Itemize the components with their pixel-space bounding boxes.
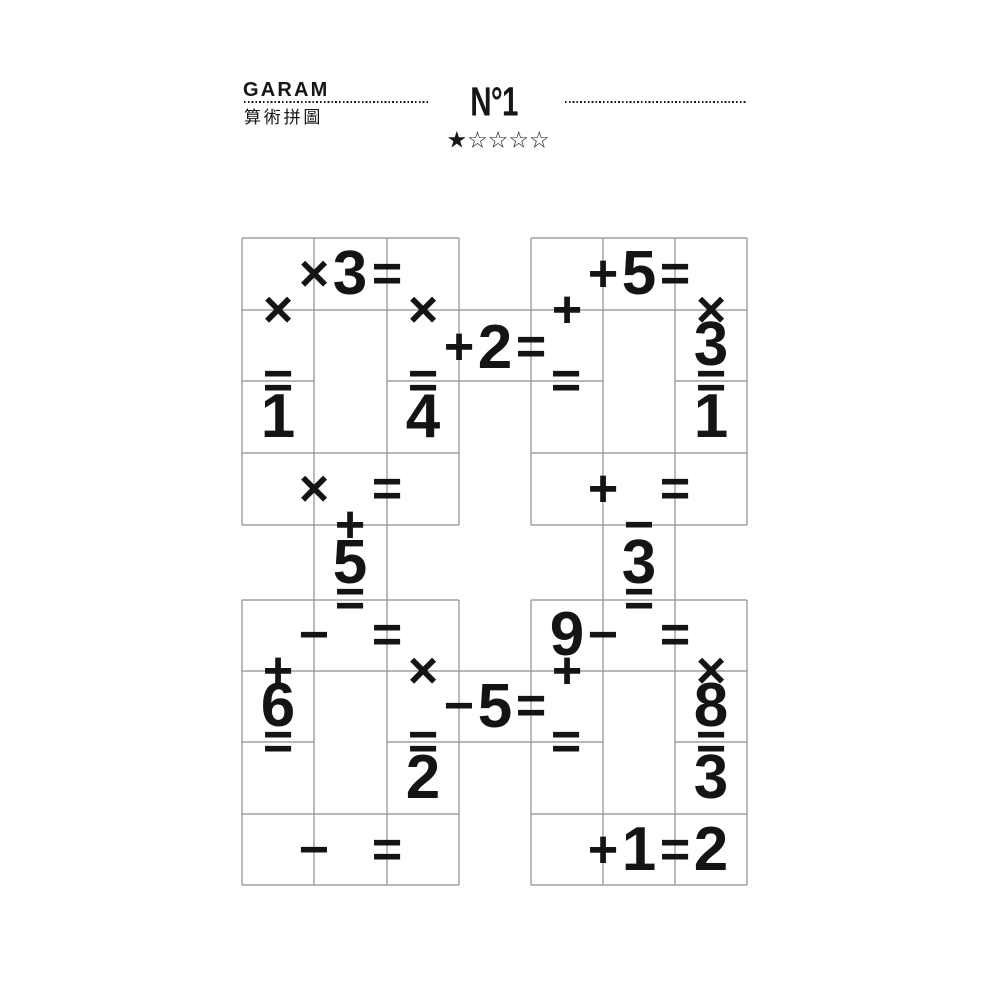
bottom-left-col3-result: 2	[406, 747, 440, 809]
top-right-row1-equals: =	[660, 248, 690, 300]
top-left-col1-result: 1	[261, 386, 295, 448]
top-right-col3-result: 1	[694, 386, 728, 448]
connector-top-value: 2	[478, 317, 512, 379]
bottom-right-col1-equals: =	[551, 716, 581, 768]
top-right-row1-given: 5	[622, 243, 656, 305]
bottom-right-col3-result: 3	[694, 747, 728, 809]
puzzle-grid	[0, 0, 1000, 1000]
top-right-row4-equals: =	[660, 463, 690, 515]
top-left-col1-operator: ×	[263, 284, 293, 336]
bottom-right-row4-operator: +	[588, 824, 618, 876]
connector-bottom-value: 5	[478, 676, 512, 738]
bottom-left-row4-equals: =	[372, 824, 402, 876]
top-right-row4-operator: +	[588, 463, 618, 515]
connector-right-equals: =	[624, 573, 654, 625]
top-right-col1-operator: +	[552, 284, 582, 336]
connector-bottom-equals: =	[516, 680, 546, 732]
bottom-right-row1-operator: −	[588, 609, 618, 661]
connector-top-operator: +	[444, 321, 474, 373]
bottom-right-row4-result: 2	[694, 819, 728, 881]
connector-top-equals: =	[516, 321, 546, 373]
bottom-left-col1-equals: =	[263, 716, 293, 768]
bottom-right-row1-equals: =	[660, 609, 690, 661]
bottom-left-row4-operator: −	[299, 824, 329, 876]
top-left-row1-given: 3	[333, 243, 367, 305]
connector-left-equals: =	[335, 573, 365, 625]
top-left-row1-equals: =	[372, 248, 402, 300]
connector-bottom-operator: −	[444, 680, 474, 732]
garam-puzzle-page: GARAM 算術拼圖 N°1 ★☆☆☆☆ × 3 = × = 1 × = 4 ×…	[0, 0, 1000, 1000]
bottom-left-col3-operator: ×	[408, 645, 438, 697]
top-left-col3-result: 4	[406, 386, 440, 448]
bottom-right-row4-equals: =	[660, 824, 690, 876]
top-left-col3-operator: ×	[408, 284, 438, 336]
top-left-row4-operator: ×	[299, 463, 329, 515]
bottom-right-row4-given: 1	[622, 819, 656, 881]
top-left-row4-equals: =	[372, 463, 402, 515]
bottom-left-row1-operator: −	[299, 609, 329, 661]
top-right-row1-operator: +	[588, 248, 618, 300]
bottom-left-row1-equals: =	[372, 609, 402, 661]
bottom-right-col1-operator: +	[552, 645, 582, 697]
top-right-col1-equals: =	[551, 355, 581, 407]
top-left-row1-operator: ×	[299, 248, 329, 300]
